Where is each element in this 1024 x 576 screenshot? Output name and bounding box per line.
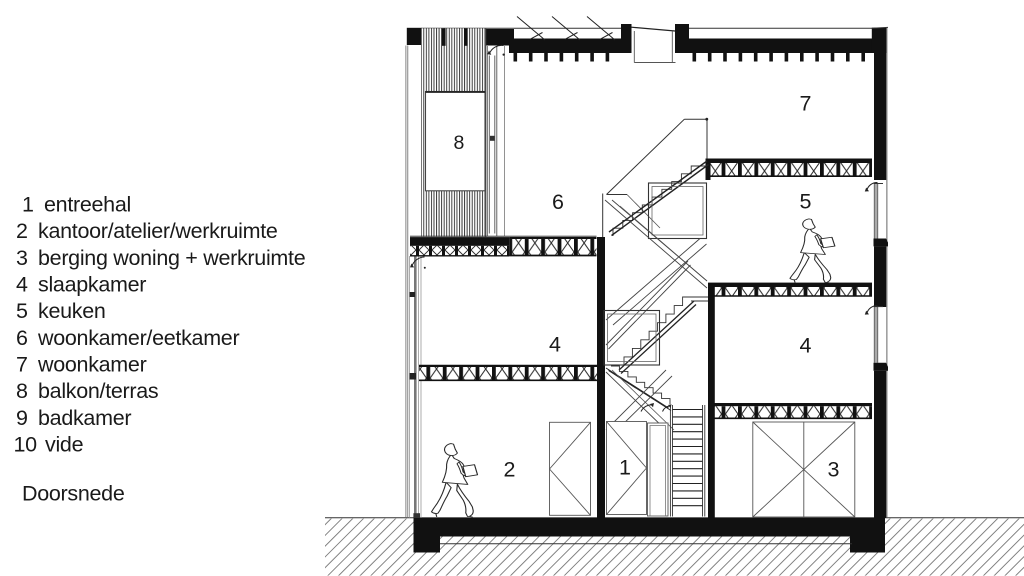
svg-text:kantoor/atelier/werkruimte: kantoor/atelier/werkruimte <box>38 219 278 243</box>
svg-text:5: 5 <box>800 190 812 214</box>
svg-text:3: 3 <box>828 458 840 482</box>
svg-text:7: 7 <box>16 353 28 377</box>
svg-text:4: 4 <box>549 333 561 357</box>
svg-text:berging woning + werkruimte: berging woning + werkruimte <box>38 246 305 270</box>
svg-text:entreehal: entreehal <box>44 193 131 217</box>
svg-text:4: 4 <box>16 273 28 297</box>
svg-text:3: 3 <box>16 246 28 270</box>
svg-text:woonkamer/eetkamer: woonkamer/eetkamer <box>37 326 239 350</box>
svg-text:5: 5 <box>16 299 28 323</box>
svg-text:8: 8 <box>454 132 465 154</box>
svg-text:woonkamer: woonkamer <box>37 353 147 377</box>
svg-text:2: 2 <box>504 458 516 482</box>
svg-text:7: 7 <box>800 92 812 116</box>
svg-text:Doorsnede: Doorsnede <box>22 482 124 506</box>
svg-text:6: 6 <box>16 326 28 350</box>
svg-text:keuken: keuken <box>38 299 106 323</box>
svg-text:badkamer: badkamer <box>38 406 131 430</box>
svg-text:4: 4 <box>800 334 812 358</box>
svg-text:1: 1 <box>22 193 34 217</box>
svg-text:1: 1 <box>619 456 631 480</box>
svg-text:balkon/terras: balkon/terras <box>38 379 158 403</box>
svg-text:slaapkamer: slaapkamer <box>38 273 146 297</box>
svg-text:vide: vide <box>45 433 83 457</box>
svg-text:8: 8 <box>16 379 28 403</box>
svg-text:10: 10 <box>14 433 38 457</box>
svg-text:6: 6 <box>552 190 564 214</box>
svg-text:9: 9 <box>16 406 28 430</box>
svg-text:2: 2 <box>16 219 28 243</box>
